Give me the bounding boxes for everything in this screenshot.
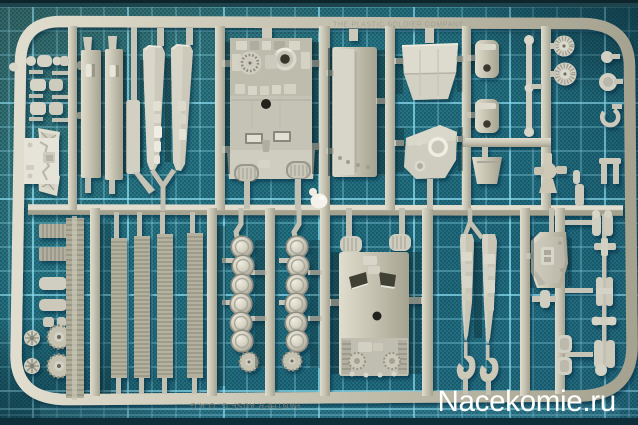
svg-text:Nacekomie.ru: Nacekomie.ru	[438, 385, 616, 418]
svg-text:PANTHER AUSF G. O.A.G: PANTHER AUSF G. O.A.G	[189, 401, 300, 410]
svg-text:THE PLASTIC SOLDIER COMPANY: THE PLASTIC SOLDIER COMPANY	[333, 22, 464, 29]
